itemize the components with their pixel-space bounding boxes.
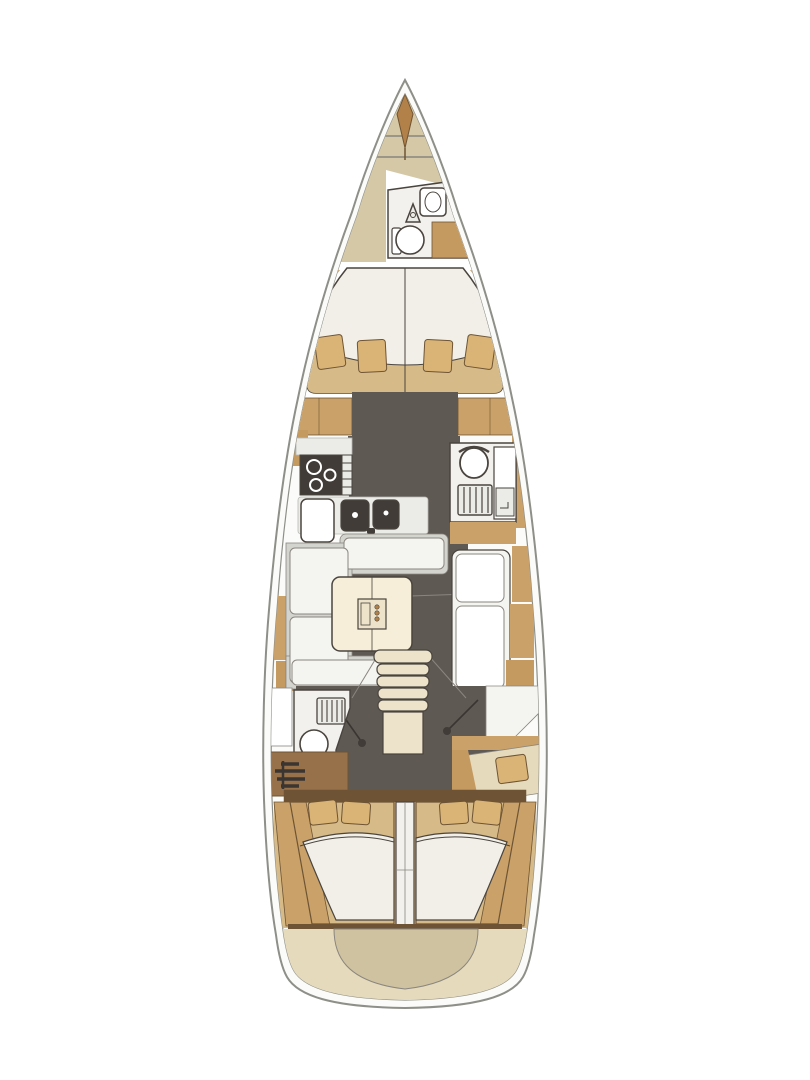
forward-head <box>300 170 512 274</box>
pillow <box>495 754 528 784</box>
sink-faucet <box>367 528 375 534</box>
settee-seat-cushion <box>456 606 504 688</box>
stove-icon <box>300 455 342 495</box>
pillow <box>472 800 502 826</box>
yacht-deck-plan <box>0 0 810 1080</box>
stair-landing <box>383 712 423 754</box>
washbasin-counter <box>494 447 516 519</box>
pillow <box>341 801 370 825</box>
interior <box>266 78 548 1007</box>
pillow <box>314 334 346 370</box>
stern-sill <box>288 924 522 929</box>
aft-bulkhead <box>284 790 526 802</box>
forward-cabin <box>278 268 532 438</box>
stair-tread <box>377 676 429 687</box>
hull-trim <box>506 660 534 690</box>
bottle-holder-icon <box>358 599 386 629</box>
settee-back-cushion <box>456 554 504 602</box>
forward-cabin-entry-floor <box>352 392 458 438</box>
hull-trim <box>510 604 534 658</box>
door-hinge <box>358 739 366 747</box>
straight-settee <box>452 550 510 692</box>
shower-grate-icon <box>317 698 345 724</box>
stair-tread <box>378 700 428 711</box>
stair-tread <box>374 650 432 663</box>
door-hinge <box>443 727 451 735</box>
shower-grate-icon <box>458 485 492 515</box>
settee-cushion <box>344 538 444 569</box>
saloon-table <box>332 577 412 651</box>
pillow <box>464 334 496 370</box>
stair-tread <box>378 688 428 699</box>
pillow <box>423 339 453 372</box>
yacht-deck-plan-page <box>0 0 810 1080</box>
pillow <box>439 801 468 825</box>
galley-worktop <box>296 438 352 455</box>
washbasin-icon <box>420 188 446 216</box>
pillow <box>357 339 387 372</box>
engine-cabinet <box>266 752 348 796</box>
aft-cabins <box>274 790 536 928</box>
toilet-icon <box>392 226 424 254</box>
stair-tread <box>377 664 429 675</box>
fridge-icon <box>301 499 334 542</box>
mid-head-aft-trim <box>450 522 516 544</box>
aft-head <box>266 688 350 796</box>
pillow <box>308 800 338 826</box>
gimbal-rail <box>342 455 352 495</box>
